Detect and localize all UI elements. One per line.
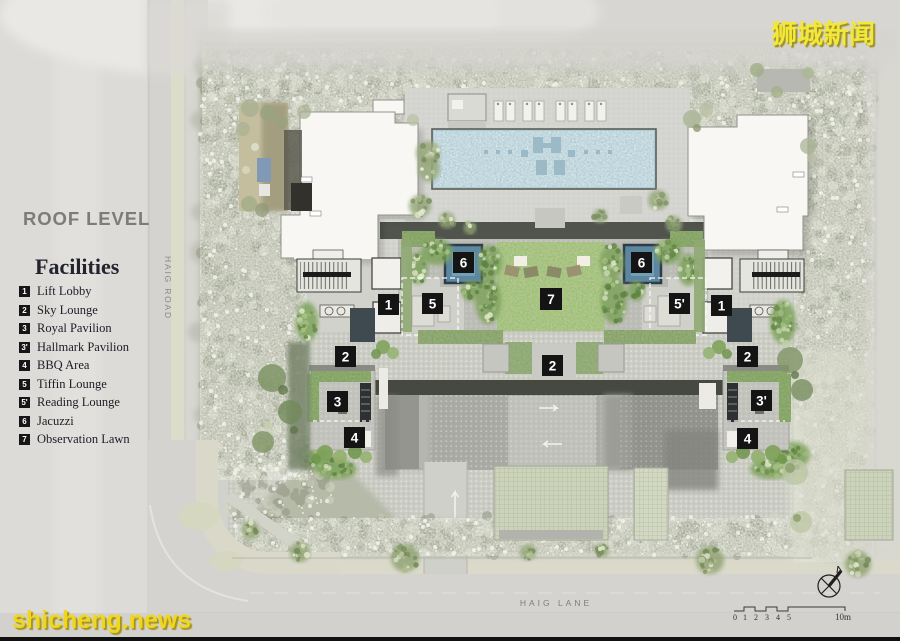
- svg-text:1: 1: [718, 299, 726, 314]
- svg-text:HAIG ROAD: HAIG ROAD: [163, 256, 173, 320]
- svg-text:2: 2: [342, 350, 350, 365]
- svg-text:3': 3': [756, 394, 767, 409]
- svg-text:5: 5: [429, 297, 437, 312]
- svg-text:7: 7: [547, 292, 555, 307]
- svg-text:1: 1: [385, 298, 393, 313]
- svg-text:3: 3: [334, 395, 342, 410]
- svg-text:5': 5': [674, 297, 685, 312]
- svg-text:6: 6: [638, 256, 646, 271]
- svg-text:3: 3: [765, 613, 769, 622]
- svg-text:HAIG LANE: HAIG LANE: [520, 598, 592, 608]
- svg-text:6: 6: [460, 256, 468, 271]
- svg-text:10m: 10m: [835, 612, 851, 622]
- svg-text:2: 2: [754, 613, 758, 622]
- svg-text:4: 4: [744, 432, 752, 447]
- svg-text:2: 2: [744, 350, 752, 365]
- svg-text:2: 2: [549, 359, 557, 374]
- svg-text:5: 5: [787, 613, 791, 622]
- svg-text:1: 1: [743, 613, 747, 622]
- svg-text:0: 0: [733, 613, 737, 622]
- svg-text:4: 4: [351, 431, 359, 446]
- svg-text:4: 4: [776, 613, 780, 622]
